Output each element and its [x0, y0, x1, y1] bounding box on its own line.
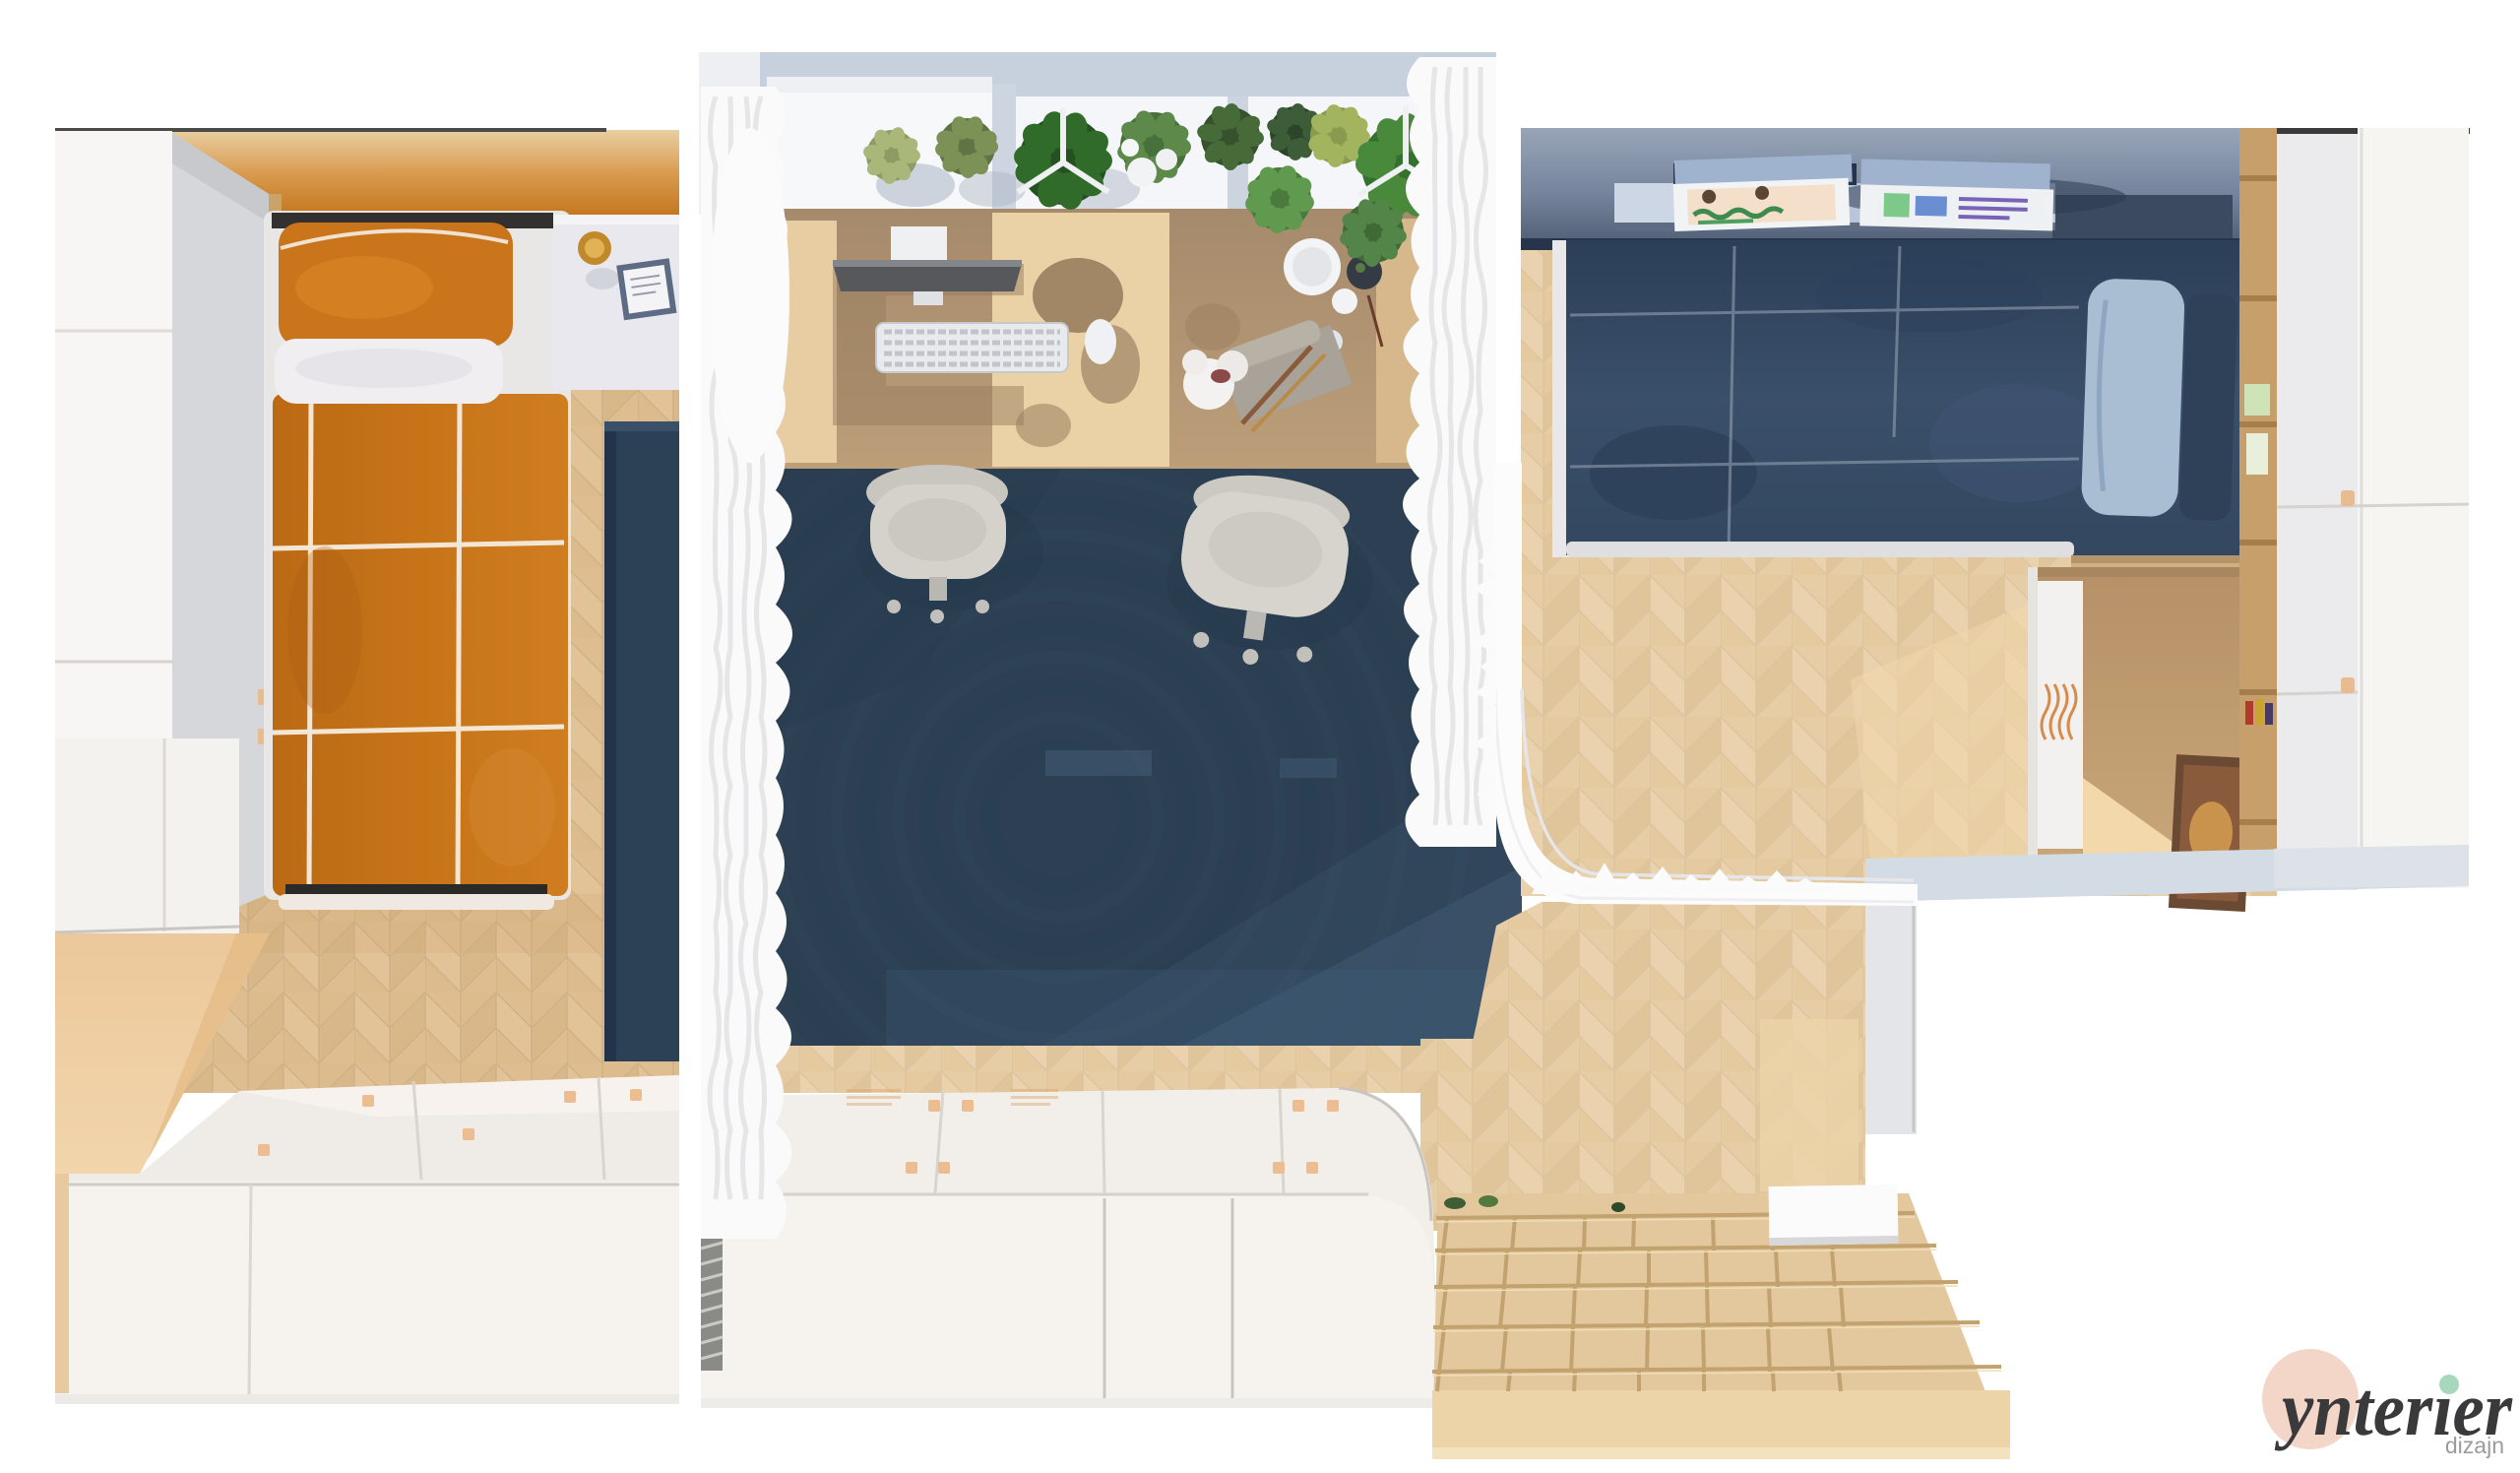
- svg-text:dizajn: dizajn: [2445, 1433, 2504, 1458]
